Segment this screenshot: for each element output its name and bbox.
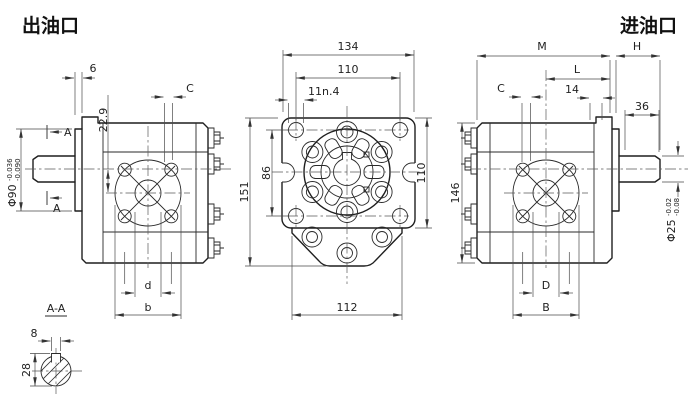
dim-key-width: 8 (31, 327, 75, 351)
dim-spigot-diameter: Φ90 -0.036 -0.090 (6, 129, 72, 211)
dim-label-phi90-tol-upper: -0.036 (6, 158, 14, 181)
left-bolt-pattern (106, 126, 190, 268)
dim-label-b: b (145, 301, 152, 314)
dim-label-l: L (574, 63, 581, 76)
dim-label-phi25-tol-lower: -0.08 (673, 198, 681, 216)
section-marker-a-top: A (64, 126, 72, 139)
dim-label-134: 134 (338, 40, 359, 53)
dim-label-d-cap: D (542, 279, 550, 292)
dim-label-phi25-tol-upper: -0.02 (665, 198, 673, 216)
dim-label-112: 112 (337, 301, 358, 314)
dim-label-c-left: C (186, 82, 194, 95)
section-title: A-A (47, 302, 66, 315)
section-a-a-view: A-A 8 28 (16, 302, 91, 400)
right-spigot (612, 129, 619, 211)
dim-label-110-top: 110 (338, 63, 359, 76)
section-marker-a-bottom: A (53, 202, 61, 215)
dim-label-110-right: 110 (415, 163, 428, 184)
technical-drawing-page: 出油口 进油口 A (0, 0, 700, 400)
dim-label-phi90: Φ90 (6, 184, 19, 207)
dim-shaft-diameter: Φ25 -0.02 -0.08 (662, 141, 684, 242)
drawing-canvas: 出油口 进油口 A (0, 0, 700, 400)
title-outlet: 出油口 (22, 14, 79, 37)
dim-label-86: 86 (260, 166, 273, 180)
title-inlet: 进油口 (620, 15, 677, 37)
dim-port-left: C (151, 82, 194, 162)
dim-h: H (616, 40, 660, 150)
dim-label-11n4: 11n.4 (308, 85, 339, 98)
dim-label-m: M (537, 40, 547, 53)
right-body-outline (477, 117, 612, 263)
dim-label-h: H (633, 40, 641, 53)
dim-label-22-9: 22.9 (97, 108, 110, 133)
dim-110-right: 110 (415, 118, 432, 228)
dim-label-146: 146 (449, 183, 462, 204)
front-corner-holes (287, 119, 409, 227)
dim-label-36: 36 (635, 100, 649, 113)
dim-label-b-cap: B (542, 301, 550, 314)
dim-label-28: 28 (20, 363, 33, 377)
right-port-bosses (461, 128, 477, 258)
dim-axis-offset: 22.9 (97, 95, 110, 192)
right-body-lines (477, 123, 594, 263)
dim-port-right: C (497, 82, 543, 162)
dim-label-14: 14 (565, 83, 579, 96)
dim-spigot-width: 6 (62, 62, 97, 115)
left-port-bosses (208, 128, 224, 258)
dim-14: 14 (565, 83, 615, 120)
left-spigot (75, 129, 82, 211)
dim-86: 86 (260, 130, 289, 216)
front-view: 134 110 11n.4 151 86 110 (238, 40, 432, 320)
dim-label-c-right: C (497, 82, 505, 95)
dim-bore-boss-left: d b (115, 205, 181, 319)
dim-label-8: 8 (31, 327, 38, 340)
dim-l: L (546, 63, 610, 79)
dim-label-phi90-tol-lower: -0.090 (14, 158, 22, 181)
dim-label-d: d (145, 279, 152, 292)
dim-134: 134 (283, 40, 414, 112)
dim-label-6: 6 (90, 62, 97, 75)
dim-label-151: 151 (238, 182, 251, 203)
section-cut-markers: A A (47, 125, 72, 215)
front-centerlines (272, 106, 424, 284)
left-side-view: A A Φ90 -0.036 -0.090 6 22.9 (6, 62, 232, 319)
dim-label-phi25: Φ25 (665, 219, 678, 242)
dim-36: 36 (625, 100, 659, 152)
right-side-view: M H L 14 C 36 (449, 40, 688, 319)
